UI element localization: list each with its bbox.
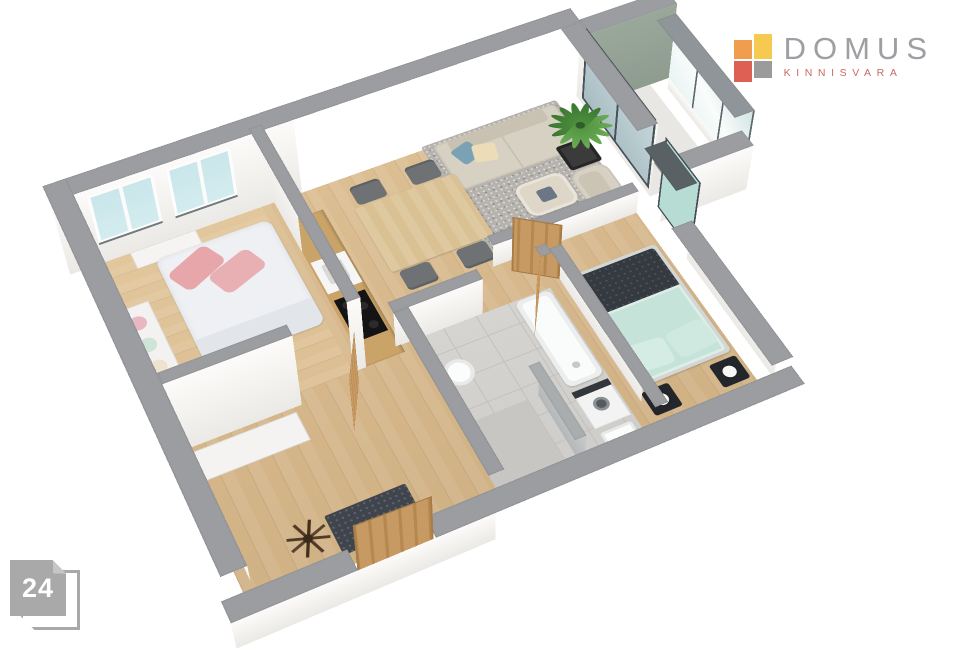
logo-mark-square bbox=[754, 61, 772, 78]
sofa-seat-split bbox=[501, 136, 523, 167]
logo-mark-square bbox=[734, 40, 752, 59]
machine-door bbox=[590, 395, 613, 413]
floor-plan-render bbox=[0, 0, 960, 640]
sofa-pillow-cream bbox=[471, 142, 500, 163]
burner bbox=[367, 319, 380, 330]
logo-mark-icon bbox=[734, 34, 774, 82]
logo: DOMUS KINNISVARA bbox=[734, 34, 934, 82]
logo-mark-square bbox=[734, 61, 752, 82]
bedroom1-window-1 bbox=[87, 174, 163, 245]
page-number-badge: 24 bbox=[8, 558, 80, 632]
living-window-1 bbox=[422, 62, 483, 132]
bedroom1-window-2 bbox=[166, 148, 238, 218]
logo-title: DOMUS bbox=[784, 34, 934, 64]
logo-subtitle: KINNISVARA bbox=[784, 67, 934, 79]
badge-number: 24 bbox=[22, 573, 54, 604]
logo-mark-square bbox=[754, 34, 772, 59]
lamp bbox=[720, 364, 740, 379]
logo-text: DOMUS KINNISVARA bbox=[784, 34, 934, 79]
apartment-3d-plan bbox=[63, 51, 921, 672]
